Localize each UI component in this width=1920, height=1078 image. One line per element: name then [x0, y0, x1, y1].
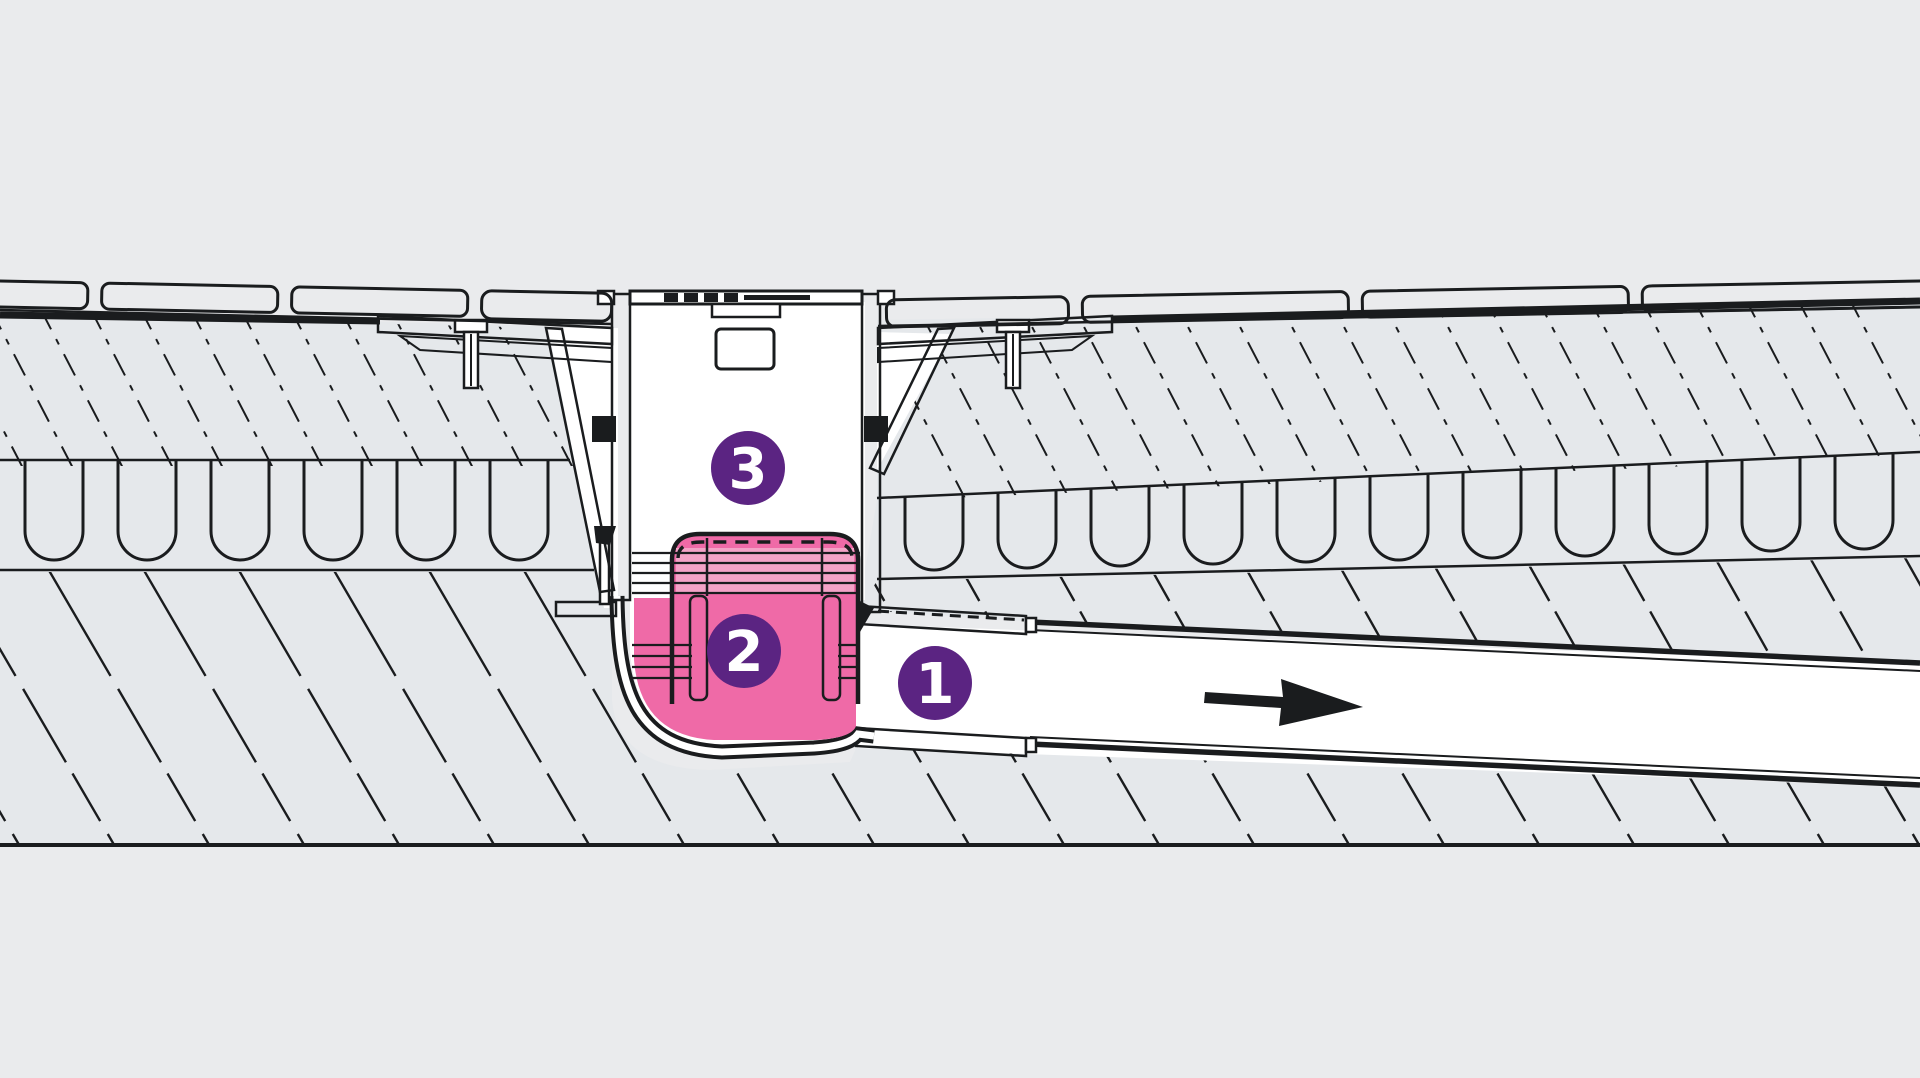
badge-label-1: 1 — [916, 652, 955, 717]
seal-block-left — [592, 416, 616, 442]
drain-cross-section-diagram: 3 2 1 — [0, 0, 1920, 1078]
callout-badge-2: 2 — [707, 614, 781, 688]
grate-frame-step — [712, 304, 780, 317]
grate-insert — [716, 329, 774, 369]
badge-label-2: 2 — [725, 620, 764, 685]
badge-label-3: 3 — [729, 437, 768, 502]
callout-badge-1: 1 — [898, 646, 972, 720]
trap-shoulder — [676, 548, 854, 592]
callout-badge-3: 3 — [711, 431, 785, 505]
